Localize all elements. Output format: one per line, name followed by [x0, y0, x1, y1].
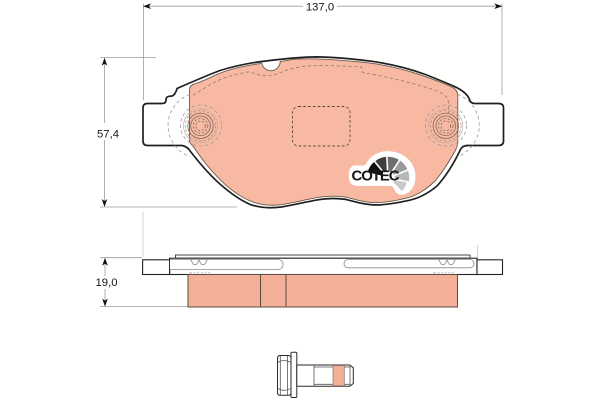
svg-text:COTEC: COTEC: [351, 168, 399, 185]
svg-text:19,0: 19,0: [96, 277, 118, 289]
svg-text:137,0: 137,0: [306, 2, 334, 14]
svg-text:57,4: 57,4: [97, 129, 119, 141]
